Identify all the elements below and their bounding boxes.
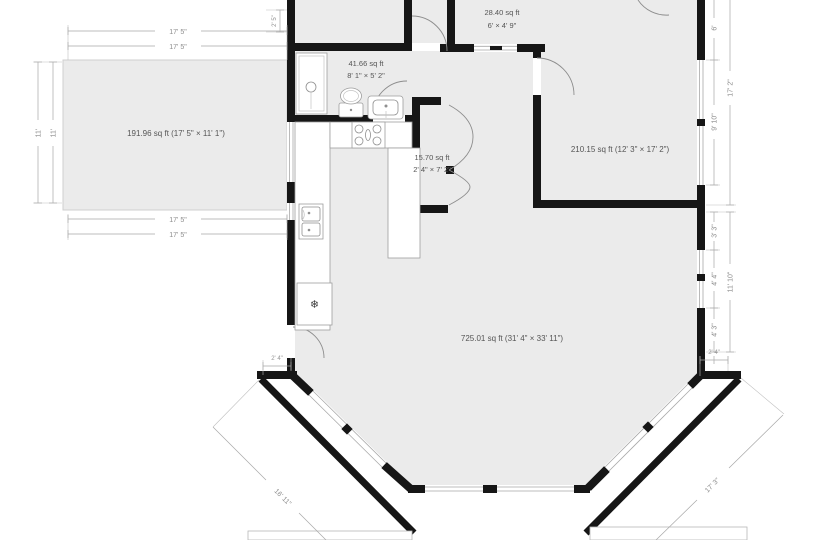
shower xyxy=(296,53,327,114)
porch-right-rail xyxy=(590,527,747,540)
dim-porch-left: 16' 11" xyxy=(272,488,292,508)
stove xyxy=(352,122,385,148)
kitchen-sink xyxy=(299,204,323,239)
floor-plan-viewport: ❄ 191.96 sq ft (17' 5" × 11' 1") 41.66 s… xyxy=(0,0,818,540)
left-room-label: 191.96 sq ft (17' 5" × 11' 1") xyxy=(127,129,225,138)
dim-right-upper-b: 9' 10" xyxy=(712,113,719,131)
top-window xyxy=(470,44,521,52)
dim-right-corner-step: 2' 4" xyxy=(708,350,720,356)
dim-right-upper-total: 17' 2" xyxy=(728,79,735,97)
dim-left-room-top-outer: 17' 5" xyxy=(169,29,187,36)
dim-left-room-left-outer: 11' xyxy=(36,129,43,138)
dim-left-room-bottom-outer: 17' 5" xyxy=(169,232,187,239)
bay-window-bottom xyxy=(425,485,574,493)
dim-left-room-left-inner: 11' xyxy=(51,129,58,138)
snowflake-icon: ❄ xyxy=(310,299,319,311)
dim-right-lower-a: 3' 3" xyxy=(712,224,719,238)
dim-right-lower-b: 4' 4" xyxy=(712,272,719,286)
hall-closet-area-label: 15.70 sq ft xyxy=(414,153,450,162)
bathroom-size-label: 8' 1" × 5' 2" xyxy=(347,71,385,80)
dim-right-lower-c: 4' 3" xyxy=(712,323,719,337)
top-closet-area-label: 28.40 sq ft xyxy=(484,8,520,17)
dim-porch-right: 17' 3" xyxy=(704,477,722,495)
kitchen-window-upper xyxy=(287,122,295,182)
floor-plan-canvas: ❄ 191.96 sq ft (17' 5" × 11' 1") 41.66 s… xyxy=(0,0,818,540)
refrigerator: ❄ xyxy=(297,283,332,325)
hall-closet-size-label: 2' 4" × 7' 2" xyxy=(413,165,451,174)
porch-left-rail xyxy=(248,531,412,540)
dim-right-upper-a: 6' xyxy=(712,25,719,30)
dim-right-lower-total: 11' 10" xyxy=(728,271,735,292)
dim-left-corner-step: 2' 4" xyxy=(271,356,283,362)
bedroom-label: 210.15 sq ft (12' 3" × 17' 2") xyxy=(571,145,670,154)
living-right-window xyxy=(697,250,705,308)
dim-left-room-bottom-inner: 17' 5" xyxy=(169,217,187,224)
dim-left-room-top-inner: 17' 5" xyxy=(169,44,187,51)
bedroom-window xyxy=(697,60,705,185)
kitchen-window-lower xyxy=(287,203,295,220)
bathroom-sink xyxy=(368,96,403,119)
bathroom-area-label: 41.66 sq ft xyxy=(348,59,384,68)
dim-top-wall-stub: 2' 5" xyxy=(272,15,278,27)
living-room-label: 725.01 sq ft (31' 4" × 33' 11") xyxy=(461,334,564,343)
top-closet-size-label: 6' × 4' 9" xyxy=(488,21,517,30)
